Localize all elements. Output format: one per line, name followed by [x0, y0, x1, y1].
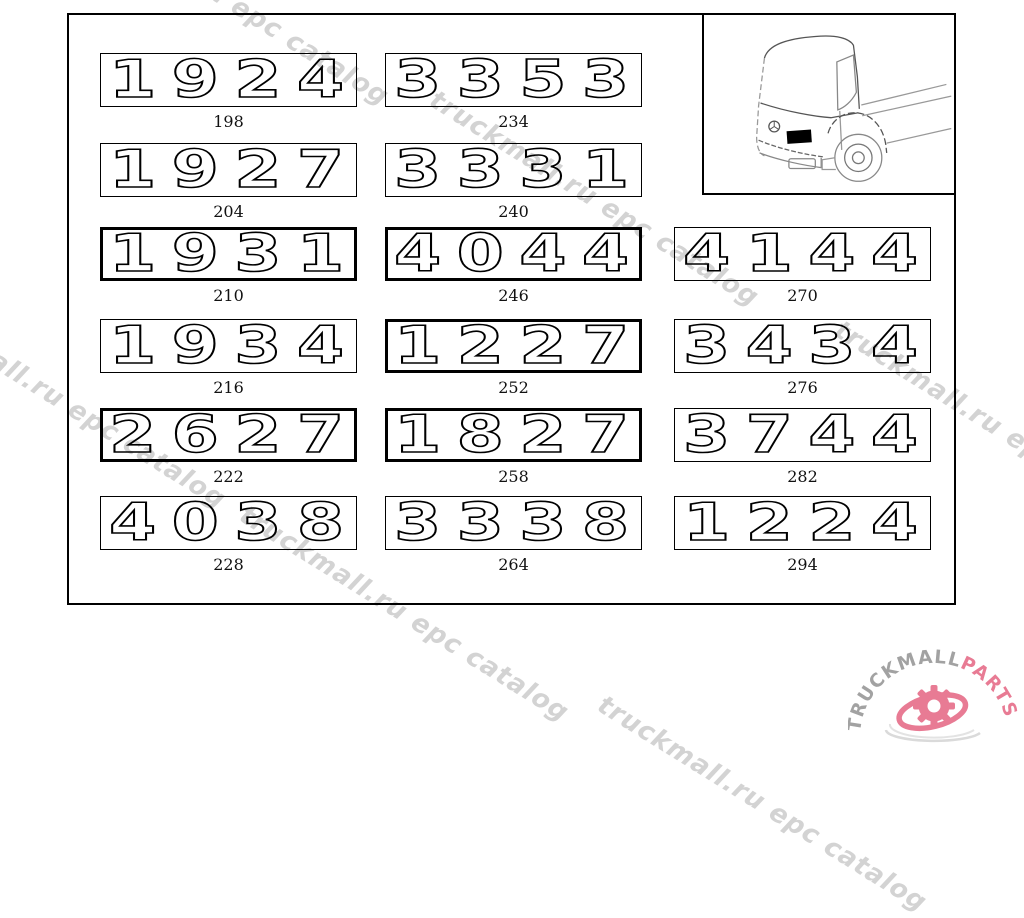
model-badge-plate: 3338	[385, 496, 642, 550]
model-badge-plate: 4044	[385, 227, 642, 281]
part-ref-number: 276	[674, 378, 931, 397]
model-number: 3353	[394, 54, 642, 106]
truck-location-thumbnail	[702, 13, 956, 195]
part-ref-number: 294	[674, 555, 931, 574]
part-ref-number: 204	[100, 202, 357, 221]
part-ref-number: 282	[674, 467, 931, 486]
badge-cell[interactable]: 1934 216	[100, 319, 357, 397]
part-ref-number: 234	[385, 112, 642, 131]
model-badge-plate: 3331	[385, 143, 642, 197]
model-number: 2627	[109, 409, 357, 461]
badge-cell[interactable]: 3434 276	[674, 319, 931, 397]
model-number: 1934	[109, 320, 357, 372]
model-number: 1224	[683, 497, 931, 549]
badge-cell[interactable]: 3338 264	[385, 496, 642, 574]
badge-location-marker	[787, 130, 812, 144]
model-badge-plate: 1934	[100, 319, 357, 373]
model-badge-plate: 3353	[385, 53, 642, 107]
model-number: 3331	[394, 144, 642, 196]
part-ref-number: 258	[385, 467, 642, 486]
model-number: 1827	[394, 409, 642, 461]
badge-cell[interactable]: 1931 210	[100, 227, 357, 305]
part-ref-number: 240	[385, 202, 642, 221]
part-ref-number: 270	[674, 286, 931, 305]
part-ref-number: 222	[100, 467, 357, 486]
model-badge-plate: 1927	[100, 143, 357, 197]
model-number: 1227	[394, 320, 642, 372]
model-number: 4044	[394, 228, 642, 280]
badge-cell[interactable]: 4038 228	[100, 496, 357, 574]
part-ref-number: 246	[385, 286, 642, 305]
part-ref-number: 264	[385, 555, 642, 574]
truck-cab-front-line-drawing-icon	[704, 15, 954, 193]
model-number: 1931	[109, 228, 357, 280]
part-ref-number: 198	[100, 112, 357, 131]
model-number: 3338	[394, 497, 642, 549]
diagram-board: 1924 198 3353 234 1927 204 3331 240 1931…	[67, 13, 956, 605]
model-badge-plate: 2627	[100, 408, 357, 462]
model-badge-plate: 1827	[385, 408, 642, 462]
badge-cell[interactable]: 1224 294	[674, 496, 931, 574]
badge-cell[interactable]: 1827 258	[385, 408, 642, 486]
part-ref-number: 216	[100, 378, 357, 397]
model-number: 4144	[683, 228, 931, 280]
badge-cell[interactable]: 3331 240	[385, 143, 642, 221]
model-number: 4038	[109, 497, 357, 549]
badge-cell[interactable]: 1924 198	[100, 53, 357, 131]
badge-cell[interactable]: 4044 246	[385, 227, 642, 305]
model-number: 3744	[683, 409, 931, 461]
gear-swoosh-icon: TRUCKMALLPARTS	[848, 640, 1020, 748]
model-badge-plate: 3744	[674, 408, 931, 462]
model-badge-plate: 1924	[100, 53, 357, 107]
badge-cell[interactable]: 2627 222	[100, 408, 357, 486]
model-badge-plate: 1224	[674, 496, 931, 550]
part-ref-number: 228	[100, 555, 357, 574]
badge-cell[interactable]: 1927 204	[100, 143, 357, 221]
badge-cell[interactable]: 1227 252	[385, 319, 642, 397]
model-badge-plate: 4144	[674, 227, 931, 281]
badge-cell[interactable]: 4144 270	[674, 227, 931, 305]
model-number: 3434	[683, 320, 931, 372]
model-badge-plate: 1227	[385, 319, 642, 373]
model-number: 1924	[109, 54, 357, 106]
badge-cell[interactable]: 3744 282	[674, 408, 931, 486]
model-badge-plate: 4038	[100, 496, 357, 550]
part-ref-number: 210	[100, 286, 357, 305]
model-badge-plate: 1931	[100, 227, 357, 281]
model-badge-plate: 3434	[674, 319, 931, 373]
brand-logo: TRUCKMALLPARTS	[848, 640, 1020, 748]
part-ref-number: 252	[385, 378, 642, 397]
model-number: 1927	[109, 144, 357, 196]
badge-cell[interactable]: 3353 234	[385, 53, 642, 131]
